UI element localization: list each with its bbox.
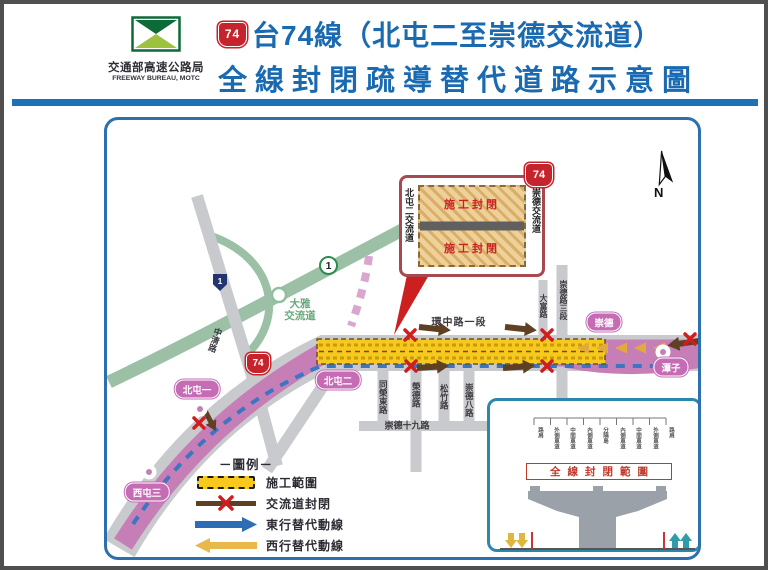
lane-label: 內側車道 [610,427,624,449]
lane-label: 外側車道 [643,427,657,449]
title-line-2: 全線封閉疏導替代道路示意圖 [218,57,762,99]
legend-item-closed: 交流道封閉 [195,495,331,511]
lane-bracket [490,415,701,427]
legend-item-westbound: 西行替代動線 [195,537,344,553]
closure-upper-label: 施工封閉 [420,196,524,212]
badge-beitun1: 北屯一 [175,380,220,399]
lane-label: 中間車道 [560,427,574,449]
street-label-songzhu: 松竹路 [440,384,449,410]
callout-right-label: 崇德交流道 [531,188,540,264]
lane-label: 外側車道 [544,427,558,449]
closure-callout: 北屯二交流道 崇德交流道 施工封閉 施工封閉 [399,175,545,277]
national-highway-1-shield-icon: 1 [319,256,338,275]
poster: 交通部高速公路局 FREEWAY BUREAU, MOTC 74 台74線（北屯… [0,0,768,570]
street-label-chongde3: 崇德路三段 [559,280,567,320]
route-74-shield-icon: 74 [246,353,270,374]
street-label-chongde19: 崇德十九路 [384,419,429,432]
viaduct-cross-section [498,485,697,555]
north-label: N [654,185,663,200]
legend-item-construction: 施工範圍 [195,474,318,490]
street-label-dafu: 大富路 [539,294,547,318]
legend-title: －圖例－ [219,454,385,473]
lane-label: 中間車道 [626,427,640,449]
lane-label: 分隔島 [593,427,607,444]
callout-median-bar [420,222,524,231]
agency-name: 交通部高速公路局 [106,59,206,75]
street-label-chongde8: 崇德八路 [465,383,474,417]
ground-westbound-arrows [505,533,528,548]
badge-tanzi: 潭子 [653,358,688,377]
interchange-closed-x-icon [540,359,554,373]
agency-name-en: FREEWAY BUREAU, MOTC [106,75,206,82]
callout-hatch-area: 施工封閉 施工封閉 [418,185,526,267]
title-text-1: 台74線（北屯二至崇德交流道） [252,14,662,54]
lane-label: 路肩 [659,427,673,438]
interchange-closed-x-icon [683,332,697,346]
interchange-closed-x-icon [403,328,417,342]
callout-left-label: 北屯二交流道 [404,188,413,264]
title-line-1: 74 台74線（北屯二至崇德交流道） [218,14,762,54]
closure-lower-label: 施工封閉 [420,240,524,256]
interchange-closed-x-icon [192,416,206,430]
legend-item-eastbound: 東行替代動線 [195,516,344,532]
ground-eastbound-arrows [669,533,692,548]
route-74-shield-icon: 74 [525,163,553,187]
header-divider-bar [12,99,758,106]
inset-closure-label: 全線封閉範圍 [526,463,672,480]
page-title: 74 台74線（北屯二至崇德交流道） 全線封閉疏導替代道路示意圖 [218,14,762,99]
eastbound-arrow-swatch-icon [195,516,257,532]
legend: －圖例－ 施工範圍 交流道封閉 [195,454,385,473]
interchange-closed-x-icon [404,359,418,373]
map-area: 北屯二交流道 崇德交流道 施工封閉 施工封閉 74 74 1 1 N [104,117,701,560]
badge-chongde: 崇德 [586,313,621,332]
freeway-bureau-logo-icon [131,16,181,52]
route-74-shield-icon: 74 [218,22,247,47]
street-label-tongrong: 同榮東路 [379,380,388,414]
cross-section-inset: 路肩 外側車道 中間車道 內側車道 分隔島 內側車道 中間車道 外側車道 路肩 … [487,398,701,552]
street-label-rongde: 榮德路 [412,382,421,408]
closed-connector-dashed [351,256,369,326]
badge-beitun2: 北屯二 [316,371,361,390]
interchange-closed-swatch-icon [195,495,257,511]
badge-xitun3: 西屯三 [125,483,170,502]
lane-label: 內側車道 [577,427,591,449]
daya-interchange-label: 大雅 交流道 [284,298,316,322]
street-label-huanzhong: 環中路一段 [432,314,487,329]
interchange-closed-x-icon [540,328,554,342]
lane-label: 路肩 [528,427,542,438]
construction-zone-swatch-icon [197,476,255,489]
construction-zone-band [317,339,605,364]
westbound-arrow-swatch-icon [195,537,257,553]
north-arrow-icon: N [642,148,686,207]
agency-logo-block: 交通部高速公路局 FREEWAY BUREAU, MOTC [106,16,206,82]
